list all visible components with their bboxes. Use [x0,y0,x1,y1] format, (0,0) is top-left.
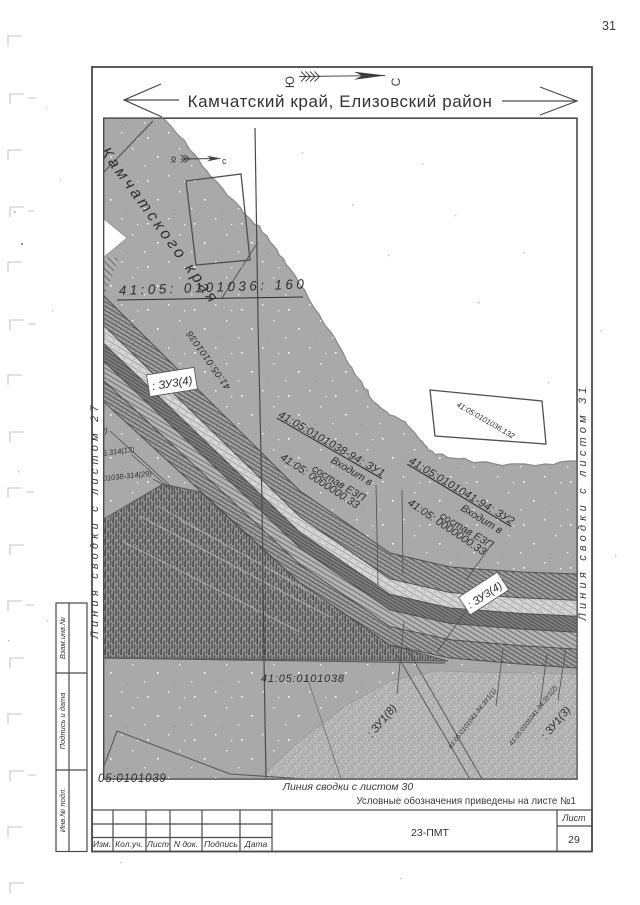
svg-text:31: 31 [602,19,616,33]
svg-text:ю: ю [168,156,178,163]
svg-text:Дата: Дата [244,839,268,849]
svg-text:N док.: N док. [174,839,198,849]
svg-text:Ю: Ю [283,76,297,88]
svg-text:Условные обозначения приведены: Условные обозначения приведены на листе … [356,796,576,807]
svg-text:05:0101039: 05:0101039 [98,773,167,785]
svg-text:Лист: Лист [146,839,169,849]
svg-text:Кол.уч.: Кол.уч. [115,839,143,849]
svg-text:Взам.инв.№: Взам.инв.№ [58,617,67,659]
svg-text:Изм.: Изм. [93,839,111,849]
svg-text:Линия сводки с листом 31: Линия сводки с листом 31 [577,383,589,622]
svg-text:Инв.№ подл.: Инв.№ подл. [58,788,67,832]
svg-text:23-ПМТ: 23-ПМТ [411,827,449,839]
svg-text:с: с [222,156,227,166]
svg-text:Линия сводки с листом 30: Линия сводки с листом 30 [282,781,414,793]
svg-text:Камчатский край, Елизовский ра: Камчатский край, Елизовский район [188,92,493,111]
svg-text:Линия сводки с листом 27: Линия сводки с листом 27 [89,401,101,640]
svg-text:Подпись и дата: Подпись и дата [58,693,67,750]
svg-text:Подпись: Подпись [204,839,238,849]
svg-text:С: С [389,77,403,86]
svg-text:41:05:0101038: 41:05:0101038 [261,673,345,685]
svg-text:29: 29 [568,834,580,846]
svg-text:Лист: Лист [561,813,586,823]
